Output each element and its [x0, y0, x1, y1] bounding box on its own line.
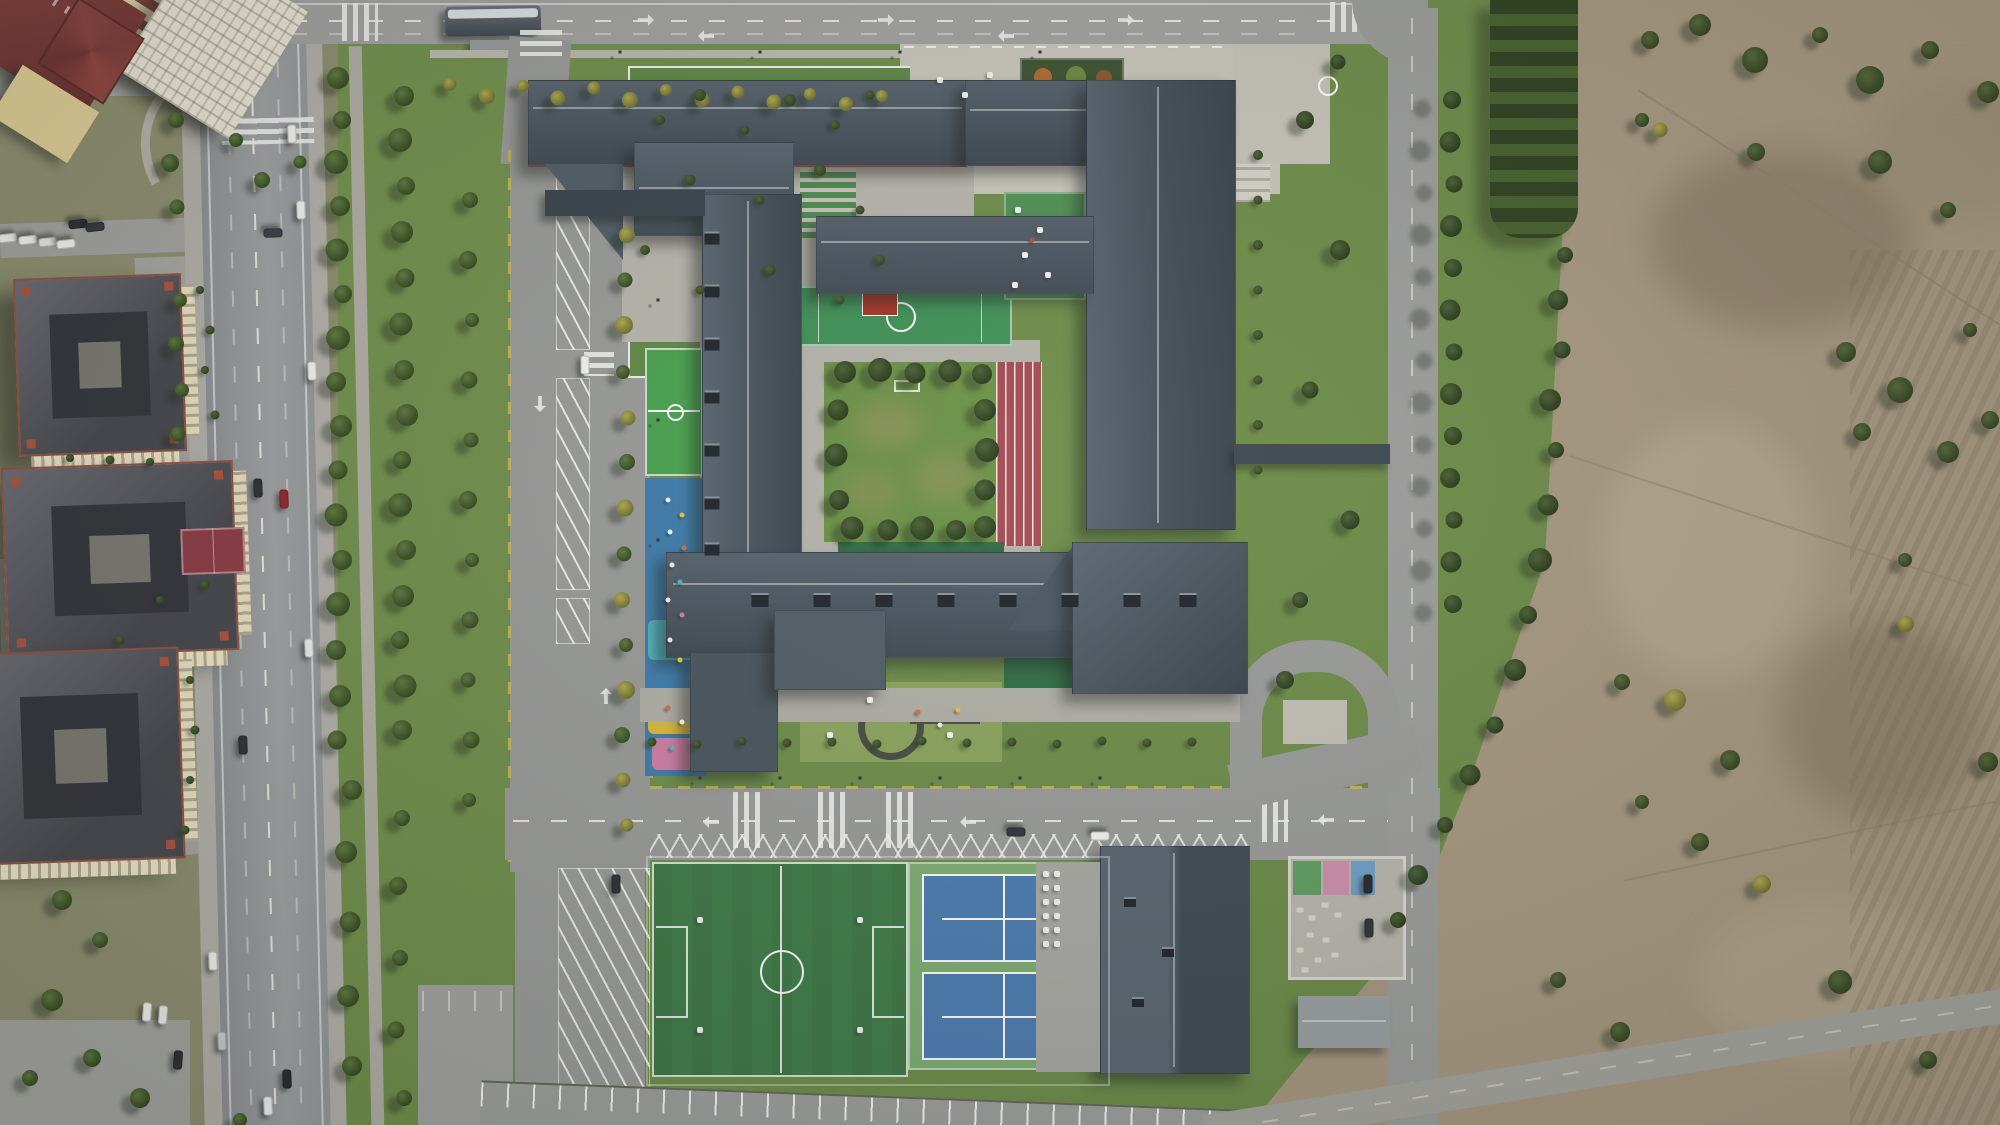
- white-dot: [827, 732, 833, 738]
- curb: [508, 150, 511, 870]
- tree-green: [614, 727, 630, 743]
- ne-pavement: [1234, 44, 1330, 164]
- bush: [1098, 737, 1107, 746]
- parking-hatch: [556, 378, 590, 590]
- equip-dot: [680, 720, 685, 725]
- roof-window-wide: [1180, 593, 1197, 607]
- equip-dot: [682, 546, 687, 551]
- tree-green: [396, 540, 416, 560]
- tree-green: [327, 67, 349, 89]
- car: [296, 200, 306, 219]
- equip-dot: [680, 613, 685, 618]
- white-dot: [1054, 941, 1060, 947]
- tree-field: [1853, 423, 1871, 441]
- court-line: [981, 290, 982, 342]
- poplar-row: [1490, 0, 1578, 238]
- white-dot: [1043, 927, 1049, 933]
- light-pole: [859, 777, 862, 780]
- inner-courtyard: [49, 312, 150, 419]
- tree-green: [392, 950, 408, 966]
- tree-dark: [1302, 382, 1319, 399]
- tree-green: [333, 111, 351, 129]
- white-dot: [1037, 227, 1043, 233]
- bush: [738, 737, 747, 746]
- tree-green: [461, 673, 476, 688]
- tree-field: [1856, 66, 1884, 94]
- covered-walkway: [545, 190, 705, 216]
- tree-dark: [1296, 111, 1314, 129]
- penalty-box: [872, 926, 904, 1018]
- light-pole: [657, 539, 660, 542]
- gym-vent: [1162, 947, 1174, 957]
- white-dot: [697, 1027, 703, 1033]
- tree-green: [391, 221, 413, 243]
- equip-dot: [668, 638, 673, 643]
- light-pole: [1099, 777, 1102, 780]
- apartment-block: [0, 647, 186, 866]
- tree-green: [22, 1070, 38, 1086]
- bush: [648, 738, 657, 747]
- white-dot: [1012, 282, 1018, 288]
- stub-wing-roof: [774, 610, 886, 690]
- car: [279, 489, 289, 508]
- tree-dark: [825, 444, 848, 467]
- equip-dot: [680, 513, 685, 518]
- bush: [201, 581, 210, 590]
- tree-dark: [1538, 495, 1559, 516]
- car: [142, 1002, 152, 1022]
- tree-green: [390, 313, 413, 336]
- bush: [106, 456, 115, 465]
- tree-green: [337, 985, 359, 1007]
- tree-yellow: [617, 500, 634, 517]
- center-circle: [760, 950, 804, 994]
- tree-green: [168, 336, 184, 352]
- car: [581, 356, 590, 375]
- tree-green: [334, 285, 352, 303]
- tree-yellow: [617, 681, 635, 699]
- dropoff-island: [1283, 700, 1347, 744]
- tree-yellow: [622, 92, 638, 108]
- tree-field: [1691, 833, 1709, 851]
- white-dot: [1043, 885, 1049, 891]
- tree-roadside: [1440, 132, 1461, 153]
- roof-trim: [220, 631, 229, 640]
- tree-green: [326, 326, 350, 350]
- meadow-blotch: [1600, 420, 1820, 680]
- tree-dark: [910, 516, 934, 540]
- light-pole: [619, 51, 622, 54]
- bush: [866, 91, 875, 100]
- tree-green: [175, 383, 189, 397]
- roof-trim: [160, 657, 169, 666]
- plaza-dash-line: [904, 46, 1276, 48]
- east-covered-walkway: [1234, 444, 1390, 464]
- tree-green: [462, 793, 476, 807]
- tree-roadside: [1441, 552, 1462, 573]
- light-pole: [1039, 51, 1042, 54]
- lawn-fence: [628, 66, 910, 68]
- tree-green: [328, 731, 347, 750]
- tree-green: [325, 504, 348, 527]
- tree-dark: [1331, 55, 1346, 70]
- tree-dark: [1487, 717, 1504, 734]
- lane-line: [215, 20, 1385, 22]
- tree-green: [171, 427, 186, 442]
- bush: [196, 286, 204, 294]
- tree-green: [330, 415, 352, 437]
- tree-green: [294, 156, 307, 169]
- equip-dot: [678, 658, 683, 663]
- car: [208, 951, 218, 970]
- bush: [694, 89, 706, 101]
- ridge-line: [533, 107, 962, 109]
- tree-green: [233, 1113, 247, 1125]
- penalty-box: [656, 926, 688, 1018]
- tree-yellow: [876, 90, 888, 102]
- bush: [830, 120, 840, 130]
- tree-green: [168, 112, 184, 128]
- ridge-line: [821, 241, 1089, 243]
- white-dot: [1045, 272, 1051, 278]
- tree-dark: [1437, 817, 1453, 833]
- car: [217, 1031, 227, 1050]
- roof-trim: [164, 281, 173, 290]
- gym-vent: [1124, 897, 1136, 907]
- tree-dark: [1276, 671, 1294, 689]
- car: [287, 124, 297, 143]
- gray-dot: [1323, 938, 1330, 943]
- tree-green: [462, 612, 479, 629]
- bush: [191, 726, 200, 735]
- stub-wing-roof: [690, 652, 778, 772]
- roof-window-wide: [876, 593, 893, 607]
- tree-green: [464, 433, 479, 448]
- container-yard: [1288, 856, 1406, 980]
- east-wing-roof: [1086, 80, 1236, 530]
- tree-green: [130, 1088, 150, 1108]
- bush: [211, 411, 220, 420]
- tree-roadside: [1446, 344, 1463, 361]
- tree-field: [1635, 795, 1649, 809]
- tree-yellow: [1753, 875, 1771, 893]
- tree-green: [396, 1090, 412, 1106]
- tree-green: [619, 638, 633, 652]
- tree-roadside: [1443, 91, 1461, 109]
- tree-field: [1550, 972, 1566, 988]
- tree-dark: [868, 358, 892, 382]
- key-red: [862, 292, 898, 316]
- bus-roof: [448, 8, 538, 19]
- gray-dot: [1335, 913, 1342, 918]
- tree-yellow: [621, 411, 636, 426]
- tree-green: [330, 196, 350, 216]
- tree-field: [1614, 674, 1630, 690]
- tree-dark: [1292, 592, 1308, 608]
- tree-green: [254, 172, 270, 188]
- equip-dot: [670, 563, 675, 568]
- mini-pitch: [645, 348, 703, 476]
- tree-yellow: [551, 91, 566, 106]
- roof-window: [705, 232, 720, 245]
- bush: [1188, 738, 1197, 747]
- tree-green: [326, 592, 350, 616]
- tree-dark: [1528, 548, 1552, 572]
- tree-yellow: [804, 88, 816, 100]
- basketball-court-red: [180, 527, 246, 575]
- tree-green: [324, 150, 348, 174]
- white-dot: [867, 697, 873, 703]
- court-line: [818, 290, 819, 342]
- bush: [696, 286, 705, 295]
- tree-roadside: [1444, 259, 1462, 277]
- equip-dot: [1030, 238, 1035, 243]
- tree-roadside: [1446, 176, 1463, 193]
- tree-dark: [834, 361, 856, 383]
- roof-trim: [11, 477, 20, 486]
- tree-yellow: [479, 88, 495, 104]
- gray-dot: [1322, 903, 1329, 908]
- gray-dot: [1302, 968, 1309, 973]
- tree-yellow: [1653, 123, 1668, 138]
- white-dot: [1054, 871, 1060, 877]
- roof-window-wide: [938, 593, 955, 607]
- equip-dot: [678, 580, 683, 585]
- light-pole: [779, 777, 782, 780]
- tree-green: [388, 493, 412, 517]
- equip-dot: [668, 530, 673, 535]
- tree-green: [465, 553, 479, 567]
- roof-trim: [214, 470, 223, 479]
- parking-stalls: [422, 991, 510, 1011]
- tree-field: [1836, 342, 1856, 362]
- car: [307, 361, 317, 380]
- courtyard-floor: [78, 342, 122, 389]
- ridge-line: [747, 201, 749, 573]
- pitch-circle: [667, 404, 684, 421]
- tree-yellow: [615, 316, 633, 334]
- car: [263, 228, 282, 238]
- dry-patch: [844, 472, 899, 512]
- white-dot: [697, 917, 703, 923]
- bush: [836, 296, 845, 305]
- tree-field: [1641, 31, 1659, 49]
- ridge-line: [1157, 87, 1159, 523]
- light-pole: [699, 777, 702, 780]
- gray-dot: [1297, 908, 1304, 913]
- lawn-circle-mark: [1318, 76, 1338, 96]
- roof-window-wide: [1062, 593, 1079, 607]
- tree-dark: [1548, 442, 1564, 458]
- bush: [146, 458, 154, 466]
- tree-green: [616, 365, 630, 379]
- tree-field: [1720, 750, 1740, 770]
- tree-green: [388, 128, 412, 152]
- roof-window: [705, 444, 720, 457]
- tree-dark: [905, 363, 926, 384]
- car: [158, 1005, 168, 1025]
- gym-vent: [1132, 997, 1144, 1007]
- white-dot: [1015, 207, 1021, 213]
- tree-green: [389, 877, 407, 895]
- tree-green: [329, 461, 348, 480]
- aerial-drone-photo: [0, 0, 2000, 1125]
- tree-green: [170, 200, 185, 215]
- roof-window-wide: [814, 593, 831, 607]
- tree-dark: [1548, 290, 1568, 310]
- tree-field: [1742, 47, 1768, 73]
- white-dot: [947, 732, 953, 738]
- tree-roadside: [1444, 595, 1462, 613]
- bush: [1253, 150, 1263, 160]
- bush: [1253, 240, 1263, 250]
- tree-green: [340, 912, 361, 933]
- bush: [1254, 376, 1263, 385]
- tree-green: [161, 154, 179, 172]
- car: [173, 1050, 183, 1070]
- tree-dark: [1390, 912, 1406, 928]
- car: [238, 735, 248, 754]
- car: [1364, 875, 1373, 894]
- equip-dot: [666, 498, 671, 503]
- tree-field: [1828, 970, 1852, 994]
- roof-trim: [166, 840, 175, 849]
- tree-field: [1689, 14, 1711, 36]
- bush: [181, 826, 190, 835]
- tree-green: [342, 1056, 362, 1076]
- bush: [814, 164, 826, 176]
- car: [304, 638, 314, 657]
- tree-green: [396, 269, 415, 288]
- tree-field: [1868, 150, 1892, 174]
- tree-roadside: [1440, 383, 1462, 405]
- parking-hatch: [556, 598, 590, 644]
- tree-green: [229, 133, 243, 147]
- bush: [1008, 738, 1017, 747]
- bush: [741, 126, 750, 135]
- tree-green: [392, 720, 412, 740]
- roof-window: [705, 543, 720, 556]
- inner-courtyard: [20, 693, 141, 820]
- equip-dot: [938, 723, 943, 728]
- central-lawn: [824, 362, 998, 542]
- tree-dark: [1330, 240, 1350, 260]
- tree-roadside: [1444, 427, 1462, 445]
- tree-dark: [1460, 765, 1481, 786]
- tree-dark: [841, 517, 864, 540]
- tree-field: [1978, 752, 1998, 772]
- ridge-line: [639, 187, 789, 189]
- white-dot: [1054, 927, 1060, 933]
- tree-yellow: [1664, 689, 1686, 711]
- tree-green: [92, 932, 108, 948]
- tree-dark: [828, 400, 849, 421]
- bush: [685, 175, 696, 186]
- bush: [1053, 740, 1062, 749]
- apartment-block: [13, 273, 187, 457]
- tree-field: [1940, 202, 1956, 218]
- tree-green: [52, 890, 72, 910]
- bush: [856, 206, 865, 215]
- gray-shed: [1298, 996, 1390, 1048]
- tree-dark: [1539, 389, 1561, 411]
- tree-green: [394, 675, 417, 698]
- equip-dot: [956, 708, 961, 713]
- bush: [1143, 739, 1152, 748]
- tree-dark: [878, 520, 899, 541]
- bush: [1254, 196, 1263, 205]
- tree-dark: [1341, 511, 1360, 530]
- white-dot: [937, 77, 943, 83]
- edge-line: [215, 3, 1385, 5]
- car: [282, 1069, 292, 1088]
- roof-trim: [17, 638, 26, 647]
- tree-yellow: [1898, 616, 1914, 632]
- tree-green: [326, 239, 349, 262]
- bush: [1253, 330, 1263, 340]
- tree-dark: [1554, 342, 1571, 359]
- tree-field: [1887, 377, 1913, 403]
- tree-dark: [1557, 247, 1573, 263]
- tree-dark: [975, 438, 999, 462]
- bush: [201, 366, 209, 374]
- white-dot: [857, 1027, 863, 1033]
- basketball-court: [788, 286, 1012, 346]
- roof-trim: [21, 286, 30, 295]
- car: [1007, 828, 1026, 837]
- bush: [756, 196, 765, 205]
- bush: [693, 740, 702, 749]
- tree-dark: [974, 516, 996, 538]
- light-pole: [657, 299, 660, 302]
- white-dot: [962, 92, 968, 98]
- bush: [873, 740, 882, 749]
- white-dot: [1054, 899, 1060, 905]
- equip-dot: [916, 710, 921, 715]
- tree-dark: [939, 360, 962, 383]
- tree-dark: [1408, 865, 1428, 885]
- light-pole: [657, 419, 660, 422]
- white-dot: [1043, 899, 1049, 905]
- equip-dot: [666, 598, 671, 603]
- tree-field: [1747, 143, 1765, 161]
- bush: [783, 739, 792, 748]
- white-dot: [1022, 252, 1028, 258]
- tree-yellow: [517, 80, 529, 92]
- tree-green: [618, 273, 633, 288]
- bush: [963, 739, 972, 748]
- tree-yellow: [767, 95, 782, 110]
- tree-green: [332, 550, 352, 570]
- tree-green: [41, 989, 63, 1011]
- tree-field: [1977, 81, 1999, 103]
- light-pole: [1019, 777, 1022, 780]
- white-dot: [1043, 913, 1049, 919]
- tree-yellow: [588, 82, 601, 95]
- container-green: [1293, 861, 1321, 895]
- roof-trim: [27, 439, 36, 448]
- tree-dark: [1519, 606, 1537, 624]
- tree-field: [1898, 553, 1912, 567]
- tree-roadside: [1446, 512, 1463, 529]
- gray-dot: [1297, 948, 1304, 953]
- tree-green: [342, 780, 362, 800]
- dry-patch: [914, 452, 974, 502]
- bush: [875, 255, 885, 265]
- tree-green: [173, 293, 187, 307]
- tree-green: [83, 1049, 101, 1067]
- tree-field: [1610, 1022, 1630, 1042]
